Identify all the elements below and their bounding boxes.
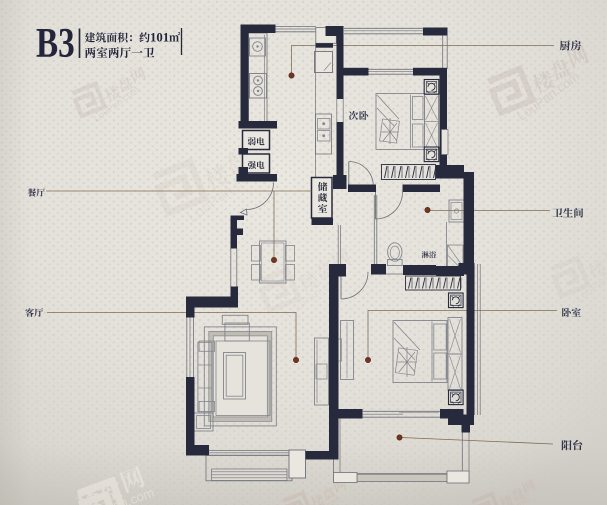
svg-text:B3: B3: [36, 20, 75, 67]
svg-text:101: 101: [150, 31, 169, 45]
